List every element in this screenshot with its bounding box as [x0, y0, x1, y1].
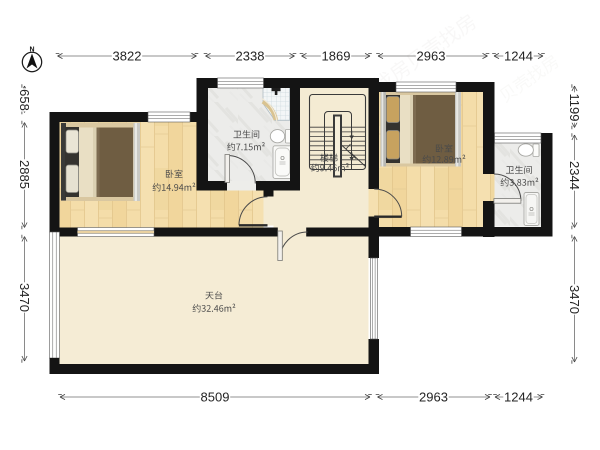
- svg-text:8509: 8509: [201, 390, 230, 405]
- svg-text:2963: 2963: [419, 390, 448, 405]
- svg-text:3822: 3822: [113, 49, 142, 64]
- svg-text:2344: 2344: [567, 161, 582, 190]
- svg-text:2885: 2885: [17, 160, 32, 189]
- svg-text:3470: 3470: [17, 283, 32, 312]
- svg-text:2963: 2963: [417, 49, 446, 64]
- svg-text:1199: 1199: [567, 94, 582, 122]
- svg-text:3470: 3470: [567, 285, 582, 314]
- svg-text:N: N: [29, 47, 34, 54]
- svg-text:1869: 1869: [322, 49, 351, 64]
- svg-text:658: 658: [17, 89, 32, 111]
- svg-text:2338: 2338: [236, 49, 265, 64]
- svg-text:1244: 1244: [504, 390, 533, 405]
- svg-text:1244: 1244: [504, 49, 533, 64]
